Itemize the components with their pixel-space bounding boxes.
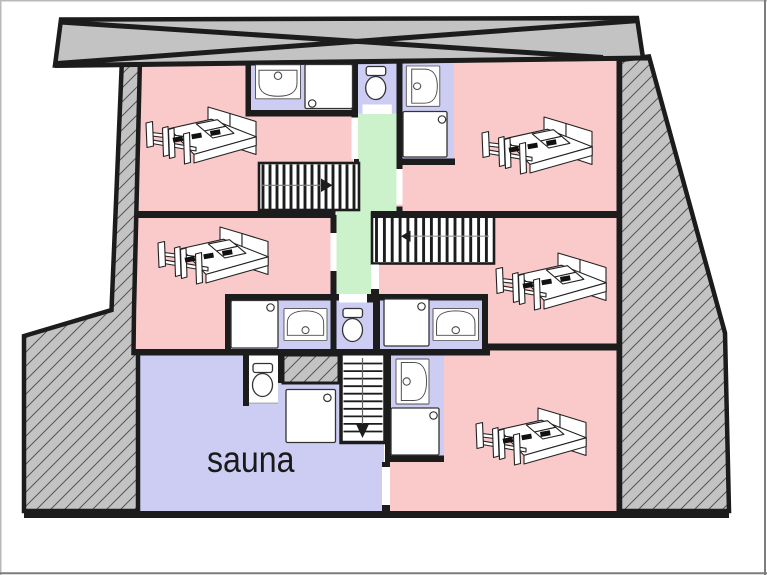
svg-text:sauna: sauna [207,439,295,481]
